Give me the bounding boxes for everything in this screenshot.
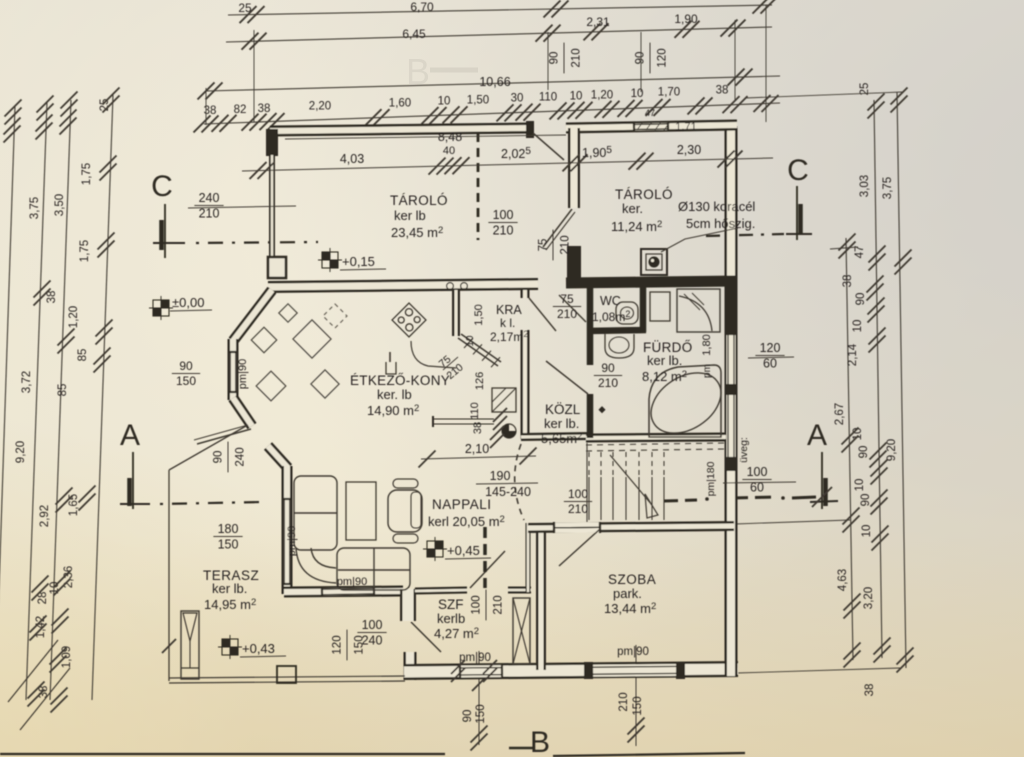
svg-text:1,20: 1,20 [68,306,80,328]
svg-text:11,24 m2: 11,24 m2 [611,219,662,234]
svg-text:240: 240 [234,447,246,466]
svg-text:14,90 m2: 14,90 m2 [367,403,419,418]
svg-text:38: 38 [472,422,484,434]
svg-text:120: 120 [332,635,344,654]
svg-text:120: 120 [656,48,668,67]
svg-text:100: 100 [362,618,383,632]
svg-text:90: 90 [601,361,615,375]
svg-text:100: 100 [471,595,483,614]
svg-text:210: 210 [493,223,514,237]
svg-text:14,95 m2: 14,95 m2 [204,597,256,612]
svg-text:38: 38 [204,105,217,117]
svg-text:30: 30 [511,93,524,105]
svg-text:1,09: 1,09 [61,646,73,668]
svg-text:90: 90 [213,451,225,464]
svg-text:pm|90: pm|90 [237,359,249,389]
svg-text:8,12 m2: 8,12 m2 [642,369,687,384]
svg-text:110: 110 [539,91,557,103]
svg-text:C: C [787,154,809,187]
svg-text:TÁROLÓ: TÁROLÓ [390,193,448,208]
svg-text:38: 38 [842,275,854,288]
svg-text:10: 10 [465,335,476,347]
svg-text:ÉTKEZŐ-KONY: ÉTKEZŐ-KONY [350,373,450,388]
svg-text:150: 150 [632,696,644,715]
svg-text:A: A [120,419,140,452]
svg-text:240: 240 [199,191,220,205]
svg-text:2,10: 2,10 [465,442,489,456]
svg-text:82: 82 [234,104,247,116]
svg-text:ker lb.: ker lb. [647,353,682,368]
svg-text:100: 100 [747,465,768,479]
svg-text:150: 150 [218,537,239,551]
svg-text:4,27 m2: 4,27 m2 [434,626,479,641]
svg-text:pm|180: pm|180 [705,461,717,496]
svg-text:1,80: 1,80 [701,334,713,355]
svg-text:145-240: 145-240 [485,485,531,499]
svg-text:4,63: 4,63 [837,569,849,591]
svg-text:10: 10 [854,479,866,492]
svg-text:1,75: 1,75 [81,163,93,185]
svg-text:210: 210 [618,692,630,711]
svg-text:1,70: 1,70 [658,87,680,99]
svg-text:38: 38 [716,85,729,97]
svg-text:60: 60 [763,356,777,370]
svg-text:1,75: 1,75 [79,240,91,262]
svg-text:38: 38 [258,103,271,115]
svg-text:1,60: 1,60 [389,97,411,109]
svg-text:kerlb: kerlb [437,611,465,626]
svg-text:126: 126 [474,372,486,390]
svg-text:2,31: 2,31 [586,15,610,29]
svg-text:90: 90 [462,710,474,723]
svg-text:6,70: 6,70 [410,0,434,14]
svg-text:10: 10 [852,428,864,441]
svg-text:210: 210 [492,595,504,614]
svg-text:210: 210 [559,235,571,254]
svg-text:2,30: 2,30 [677,143,701,157]
svg-text:KRA: KRA [496,303,522,317]
svg-text:B: B [530,726,550,757]
svg-text:C: C [151,170,173,203]
svg-text:5,65m2: 5,65m2 [541,431,582,446]
svg-text:85: 85 [57,384,69,397]
svg-text:40: 40 [443,145,455,157]
svg-text:±0,00: ±0,00 [172,295,204,310]
svg-text:+0,15: +0,15 [342,254,375,269]
svg-text:2,92: 2,92 [39,505,51,527]
svg-text:3,03: 3,03 [859,175,871,197]
svg-text:25: 25 [238,1,252,15]
svg-text:47: 47 [645,108,655,118]
svg-text:ker lb.: ker lb. [544,416,579,431]
svg-text:100: 100 [493,208,514,222]
svg-text:2,67: 2,67 [834,403,846,425]
svg-text:90: 90 [860,494,872,507]
svg-text:210: 210 [199,206,220,220]
svg-text:90: 90 [858,446,870,459]
svg-text:6,45: 6,45 [402,27,426,41]
svg-text:38: 38 [864,684,876,697]
svg-text:10: 10 [570,90,583,102]
svg-text:5cm hőszig.: 5cm hőszig. [686,216,755,231]
svg-text:1,42: 1,42 [35,616,47,638]
svg-text:75: 75 [560,292,574,306]
svg-text:SZF: SZF [438,597,464,612]
svg-text:1,50: 1,50 [473,304,485,325]
svg-text:180: 180 [218,522,239,536]
svg-text:ker.: ker. [622,201,643,216]
svg-text:150: 150 [475,704,487,723]
svg-text:9,20: 9,20 [15,441,27,463]
svg-text:8,48: 8,48 [438,130,462,144]
svg-text:210: 210 [568,502,588,516]
svg-text:1,08m2: 1,08m2 [592,309,630,324]
svg-text:kerl 20,05 m2: kerl 20,05 m2 [428,514,505,529]
svg-text:1,71: 1,71 [675,121,696,133]
svg-text:120: 120 [760,341,781,355]
svg-text:3,50: 3,50 [54,194,66,216]
svg-text:2,20: 2,20 [309,101,331,113]
svg-text:ker lb: ker lb [394,208,426,223]
svg-text:13,44 m2: 13,44 m2 [604,601,656,616]
svg-text:park.: park. [613,586,642,601]
svg-text:WC: WC [600,294,621,308]
svg-text:ker. lb: ker. lb [377,387,412,402]
svg-text:90: 90 [855,293,867,306]
svg-text:9,20: 9,20 [886,439,898,461]
svg-text:210: 210 [598,376,618,390]
svg-text:3,20: 3,20 [863,587,875,609]
svg-text:1,90: 1,90 [674,12,698,26]
svg-text:3,75: 3,75 [29,197,41,219]
svg-text:SZOBA: SZOBA [608,572,656,587]
svg-text:100: 100 [568,487,588,501]
svg-text:3,75: 3,75 [882,177,894,199]
svg-text:KÖZL: KÖZL [545,402,581,417]
svg-text:1,50: 1,50 [467,94,489,106]
svg-text:150: 150 [176,374,196,388]
svg-text:210: 210 [570,48,582,67]
svg-text:10: 10 [631,88,644,100]
svg-text:210: 210 [557,307,577,321]
svg-text:110: 110 [469,402,481,420]
svg-text:3,72: 3,72 [21,371,33,393]
svg-text:A: A [807,419,827,452]
svg-text:üveg:: üveg: [738,437,750,463]
svg-text:90: 90 [179,359,193,373]
svg-text:10: 10 [49,582,61,595]
svg-text:pm: pm [702,364,713,378]
svg-text:2,17m2: 2,17m2 [490,329,528,344]
svg-text:k l.: k l. [500,316,515,330]
svg-text:1,20: 1,20 [591,89,613,101]
svg-text:NAPPALI: NAPPALI [432,497,492,512]
svg-text:23,45 m2: 23,45 m2 [391,225,443,240]
svg-text:TÁROLÓ: TÁROLÓ [615,187,673,202]
svg-text:10: 10 [861,525,873,538]
svg-text:10: 10 [852,320,864,333]
svg-text:pm|90: pm|90 [286,526,298,556]
svg-text:+0,43: +0,43 [242,641,275,656]
svg-text:190: 190 [490,469,511,483]
svg-text:150: 150 [353,635,365,654]
svg-text:+0,45: +0,45 [447,543,480,558]
svg-text:90: 90 [635,52,647,65]
svg-text:10: 10 [438,96,451,108]
svg-text:pm|90: pm|90 [337,576,367,588]
svg-text:2,14: 2,14 [847,343,859,366]
svg-text:75: 75 [538,239,550,252]
svg-text:Ø130 koracél: Ø130 koracél [678,199,755,214]
svg-text:90: 90 [549,52,561,65]
svg-text:10,66: 10,66 [479,75,510,89]
svg-text:85: 85 [77,349,89,362]
svg-text:ker lb.: ker lb. [212,581,247,596]
svg-text:pm|90: pm|90 [617,646,649,658]
svg-text:4,03: 4,03 [340,152,364,166]
